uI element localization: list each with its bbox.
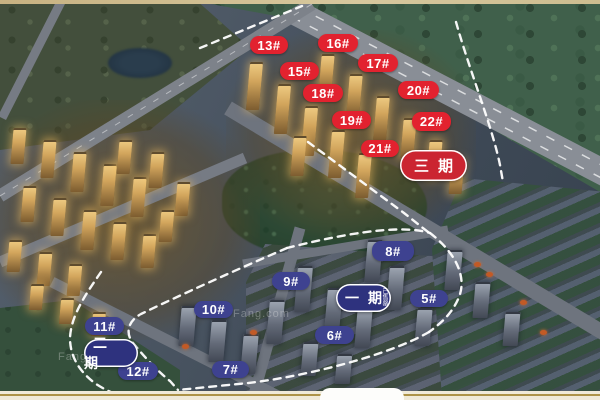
building-label-20: 20# [398,81,439,99]
building-label-17: 17# [358,54,398,72]
building-label-19: 19# [332,111,371,129]
phase-label: 一期已售罄 [336,284,391,312]
phase-label-text: 三期 [405,155,462,176]
building-label-13: 13# [250,36,288,54]
phase-label: 二期 [84,339,138,367]
building-label-22: 22# [412,112,451,131]
phase-boundary-dashed-line [429,233,462,332]
building-label-5: 5# [410,290,448,307]
building-label-16: 16# [318,34,358,52]
building-label-9: 9# [272,272,310,290]
building-label-6: 6# [315,326,354,344]
building-label-8: 8# [372,241,414,261]
building-label-7: 7# [212,361,249,378]
building-label-15: 15# [280,62,319,80]
bottom-logo-bump [320,388,404,400]
phase-label: 三期 [400,150,467,181]
building-label-10: 10# [194,301,233,318]
watermark-text: Fang.com [233,308,290,320]
phase-sold-out-text: 已售罄 [381,288,387,306]
aerial-masterplan-map: Fang.com Fang.com 13#16#15#17#18#20#19#2… [0,0,600,400]
building-label-18: 18# [303,84,343,102]
bottom-gold-line [0,394,600,396]
top-border-band [0,0,600,4]
phase-label-text: 二期 [84,333,138,373]
building-label-21: 21# [361,140,399,157]
